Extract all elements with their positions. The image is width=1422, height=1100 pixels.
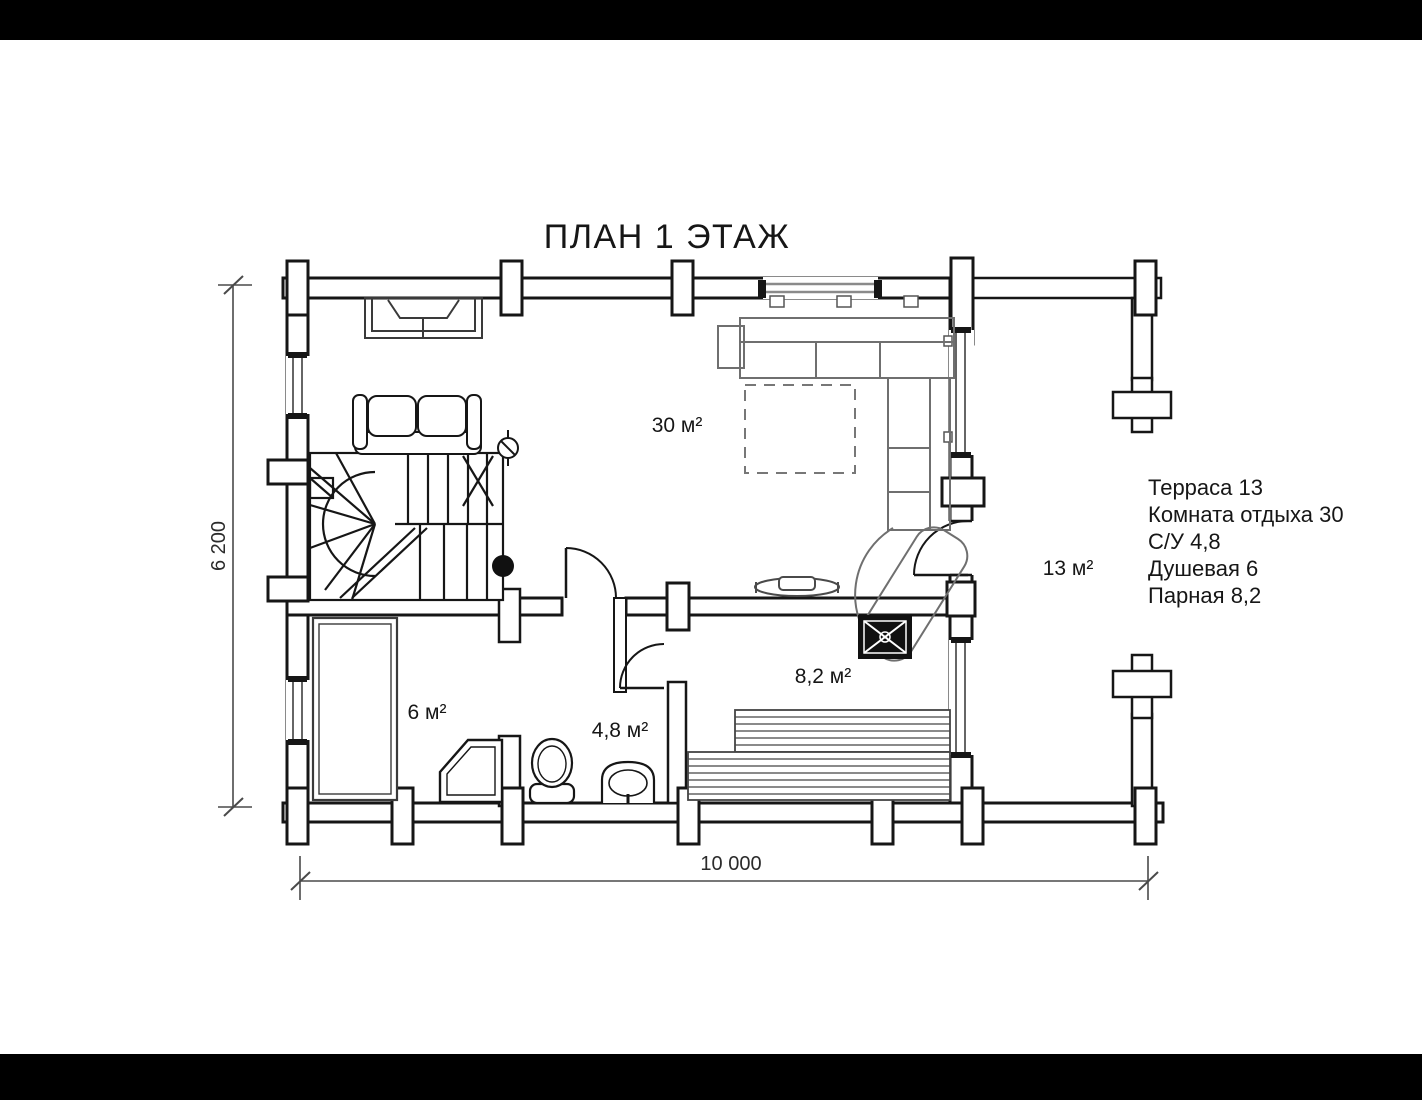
log-tab	[672, 261, 693, 315]
toilet-icon	[530, 739, 574, 803]
page-title: ПЛАН 1 ЭТАЖ	[544, 218, 790, 256]
window-left-2	[286, 676, 310, 745]
window-right-sauna	[949, 637, 974, 758]
log-tab	[287, 788, 308, 844]
log-tab	[667, 583, 689, 630]
log-tab	[502, 788, 523, 844]
legend-item-shower: Душевая 6	[1148, 556, 1258, 581]
room-label-terrace: 13 м²	[1043, 557, 1094, 580]
log-tab	[268, 577, 308, 601]
legend-item-lounge: Комната отдыха 30	[1148, 502, 1344, 527]
legend-item-wc: С/У 4,8	[1148, 529, 1221, 554]
log-tab	[962, 788, 983, 844]
wall-sauna-jamb	[614, 598, 626, 692]
log-tab	[942, 478, 984, 506]
floor-plan-canvas: 6 200 10 000 ПЛАН 1 ЭТАЖ 30 м² 13 м² 6 м…	[0, 0, 1422, 1100]
terrace-post-top-cross	[1113, 392, 1171, 418]
sink-icon	[602, 762, 654, 804]
wall-bottom	[283, 803, 1163, 822]
terrace-beam-top	[965, 278, 1161, 298]
log-tab	[501, 261, 522, 315]
log-tab	[268, 460, 308, 484]
wall-table	[755, 577, 839, 596]
room-label-wc: 4,8 м²	[592, 719, 648, 742]
room-label-living: 30 м²	[652, 414, 703, 437]
log-tab	[287, 261, 308, 315]
wall-sauna-left	[668, 682, 686, 803]
legend-item-terrace: Терраса 13	[1148, 475, 1263, 500]
dimension-width-label: 10 000	[700, 853, 761, 875]
stair-pole	[492, 555, 514, 577]
shower-tray	[313, 618, 397, 800]
legend-item-sauna: Парная 8,2	[1148, 583, 1261, 608]
terrace-post-mid-cross	[1113, 671, 1171, 697]
sauna-stove	[858, 615, 912, 659]
stairs	[310, 453, 514, 600]
screenshot-stage: 6 200 10 000 ПЛАН 1 ЭТАЖ 30 м² 13 м² 6 м…	[0, 0, 1422, 1100]
log-tab	[1135, 261, 1156, 315]
window-left-1	[286, 352, 310, 419]
log-tab	[1135, 788, 1156, 844]
letterbox-bottom	[0, 1054, 1422, 1100]
letterbox-top	[0, 0, 1422, 40]
dimension-height-label: 6 200	[208, 521, 230, 571]
room-label-sauna: 8,2 м²	[795, 665, 851, 688]
room-label-shower: 6 м²	[408, 701, 447, 724]
